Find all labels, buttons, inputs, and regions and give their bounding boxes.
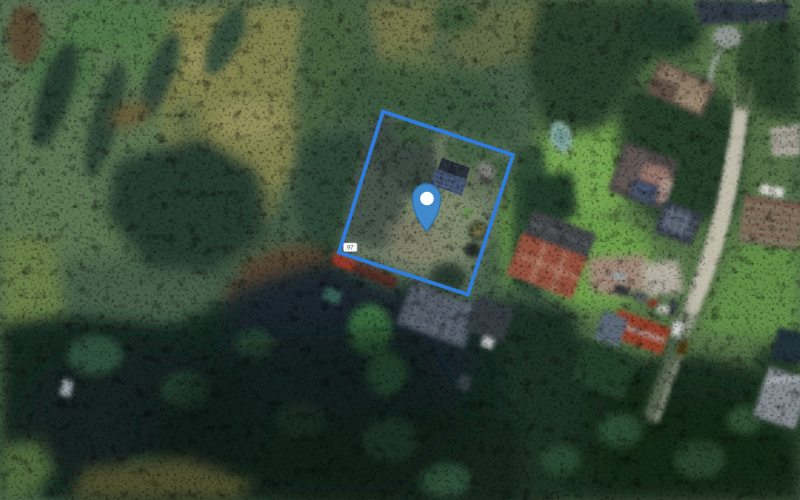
svg-text:97: 97 xyxy=(347,246,354,252)
